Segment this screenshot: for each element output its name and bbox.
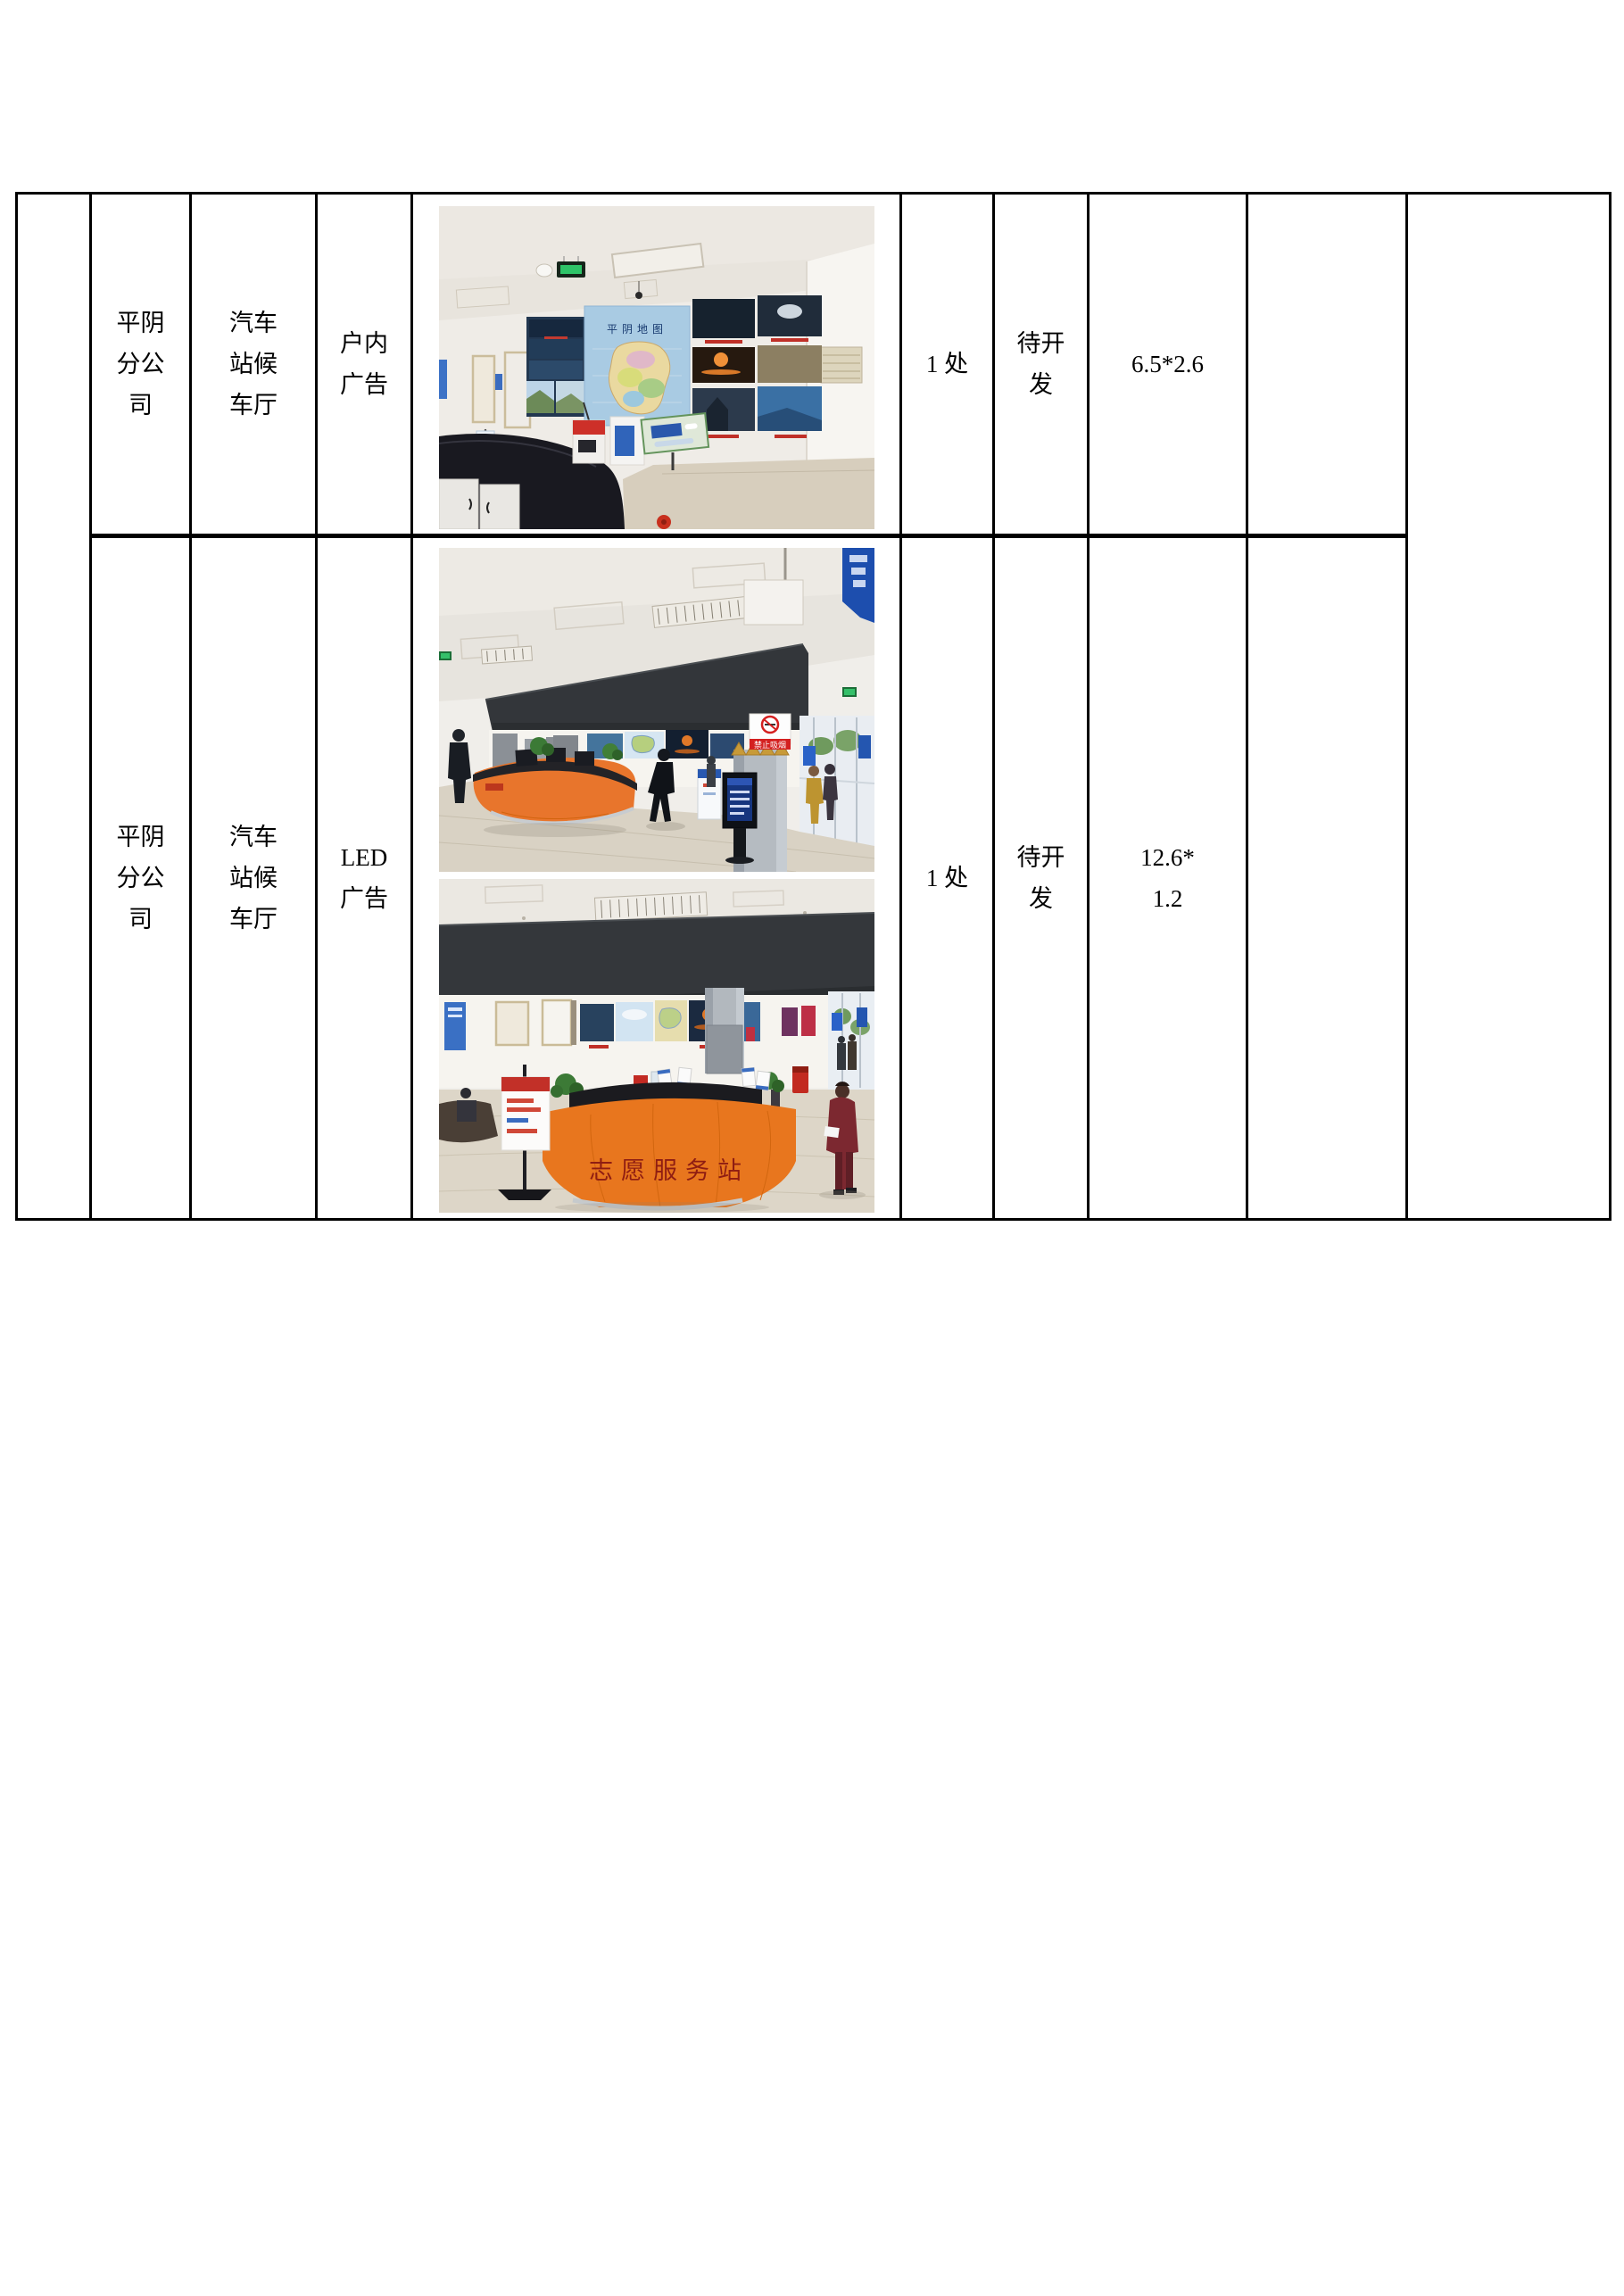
cell-quantity-row1[interactable]: 1 处 <box>901 194 994 536</box>
cell-empty-row2[interactable] <box>1247 536 1407 1220</box>
location-text: 汽车站候车厅 <box>228 303 279 426</box>
wall-vent <box>821 347 862 383</box>
status-text: 待开发 <box>1015 323 1067 405</box>
ad-inventory-table: 平阴分公司 汽车站候车厅 户内广告 <box>15 192 1612 1221</box>
quantity-text: 1 处 <box>926 351 968 377</box>
photo-hall-info-desk[interactable]: 禁止吸烟 <box>439 548 874 872</box>
ceiling-speaker <box>536 264 552 277</box>
volunteer-desk: 志愿服务站 <box>543 1082 796 1207</box>
cell-status-row2[interactable]: 待开发 <box>994 536 1089 1220</box>
cell-size-row2[interactable]: 12.6* 1.2 <box>1089 536 1247 1220</box>
cell-right-spacer[interactable] <box>1407 194 1611 1220</box>
cell-location-row2[interactable]: 汽车站候车厅 <box>191 536 317 1220</box>
wall-poster-red <box>801 1006 816 1036</box>
company-text: 平阴分公司 <box>115 816 167 940</box>
photo-wall-left-column <box>526 317 585 417</box>
company-text: 平阴分公司 <box>115 303 167 426</box>
cell-status-row1[interactable]: 待开发 <box>994 194 1089 536</box>
cell-ad-type-row1[interactable]: 户内广告 <box>317 194 412 536</box>
cell-ad-type-row2[interactable]: LED广告 <box>317 536 412 1220</box>
cell-quantity-row2[interactable]: 1 处 <box>901 536 994 1220</box>
status-text: 待开发 <box>1015 837 1067 919</box>
quantity-text: 1 处 <box>926 865 968 891</box>
photo-waiting-hall-map-wall[interactable]: 平阴地图 <box>439 206 874 529</box>
ad-type-text: LED广告 <box>338 837 390 919</box>
window-frame <box>473 356 494 422</box>
poster-edge <box>439 360 447 399</box>
table-row: 平阴分公司 汽车站候车厅 LED广告 <box>17 536 1611 1220</box>
no-smoking-text: 禁止吸烟 <box>753 740 785 750</box>
location-text: 汽车站候车厅 <box>228 816 279 940</box>
trash-bin <box>792 1066 808 1093</box>
cell-photos-row2[interactable]: 禁止吸烟 <box>412 536 901 1220</box>
cell-company-row1[interactable]: 平阴分公司 <box>91 194 191 536</box>
ceiling-camera-icon <box>635 292 642 299</box>
window-frame <box>496 1002 528 1045</box>
cell-photo-row1[interactable]: 平阴地图 <box>412 194 901 536</box>
ceiling-unit <box>744 580 803 625</box>
map-poster-title: 平阴地图 <box>606 323 667 336</box>
ad-type-text: 户内广告 <box>338 323 390 405</box>
wall-sign <box>495 374 502 390</box>
size-text: 6.5*2.6 <box>1131 351 1204 377</box>
cell-empty-row1[interactable] <box>1247 194 1407 536</box>
no-smoking-sign: 禁止吸烟 <box>750 714 791 750</box>
wall-poster-purple <box>782 1007 798 1036</box>
volunteer-desk-text: 志愿服务站 <box>589 1157 750 1184</box>
size-text: 12.6* 1.2 <box>1140 844 1195 912</box>
cell-company-row2[interactable]: 平阴分公司 <box>91 536 191 1220</box>
photo-volunteer-service-desk[interactable]: 志愿服务站 <box>439 879 874 1213</box>
cell-location-row1[interactable]: 汽车站候车厅 <box>191 194 317 536</box>
map-poster: 平阴地图 <box>584 306 690 426</box>
cell-size-row1[interactable]: 6.5*2.6 <box>1089 194 1247 536</box>
document-page: 平阴分公司 汽车站候车厅 户内广告 <box>0 0 1624 2296</box>
table-row: 平阴分公司 汽车站候车厅 户内广告 <box>17 194 1611 536</box>
cell-left-spacer[interactable] <box>17 194 91 1220</box>
